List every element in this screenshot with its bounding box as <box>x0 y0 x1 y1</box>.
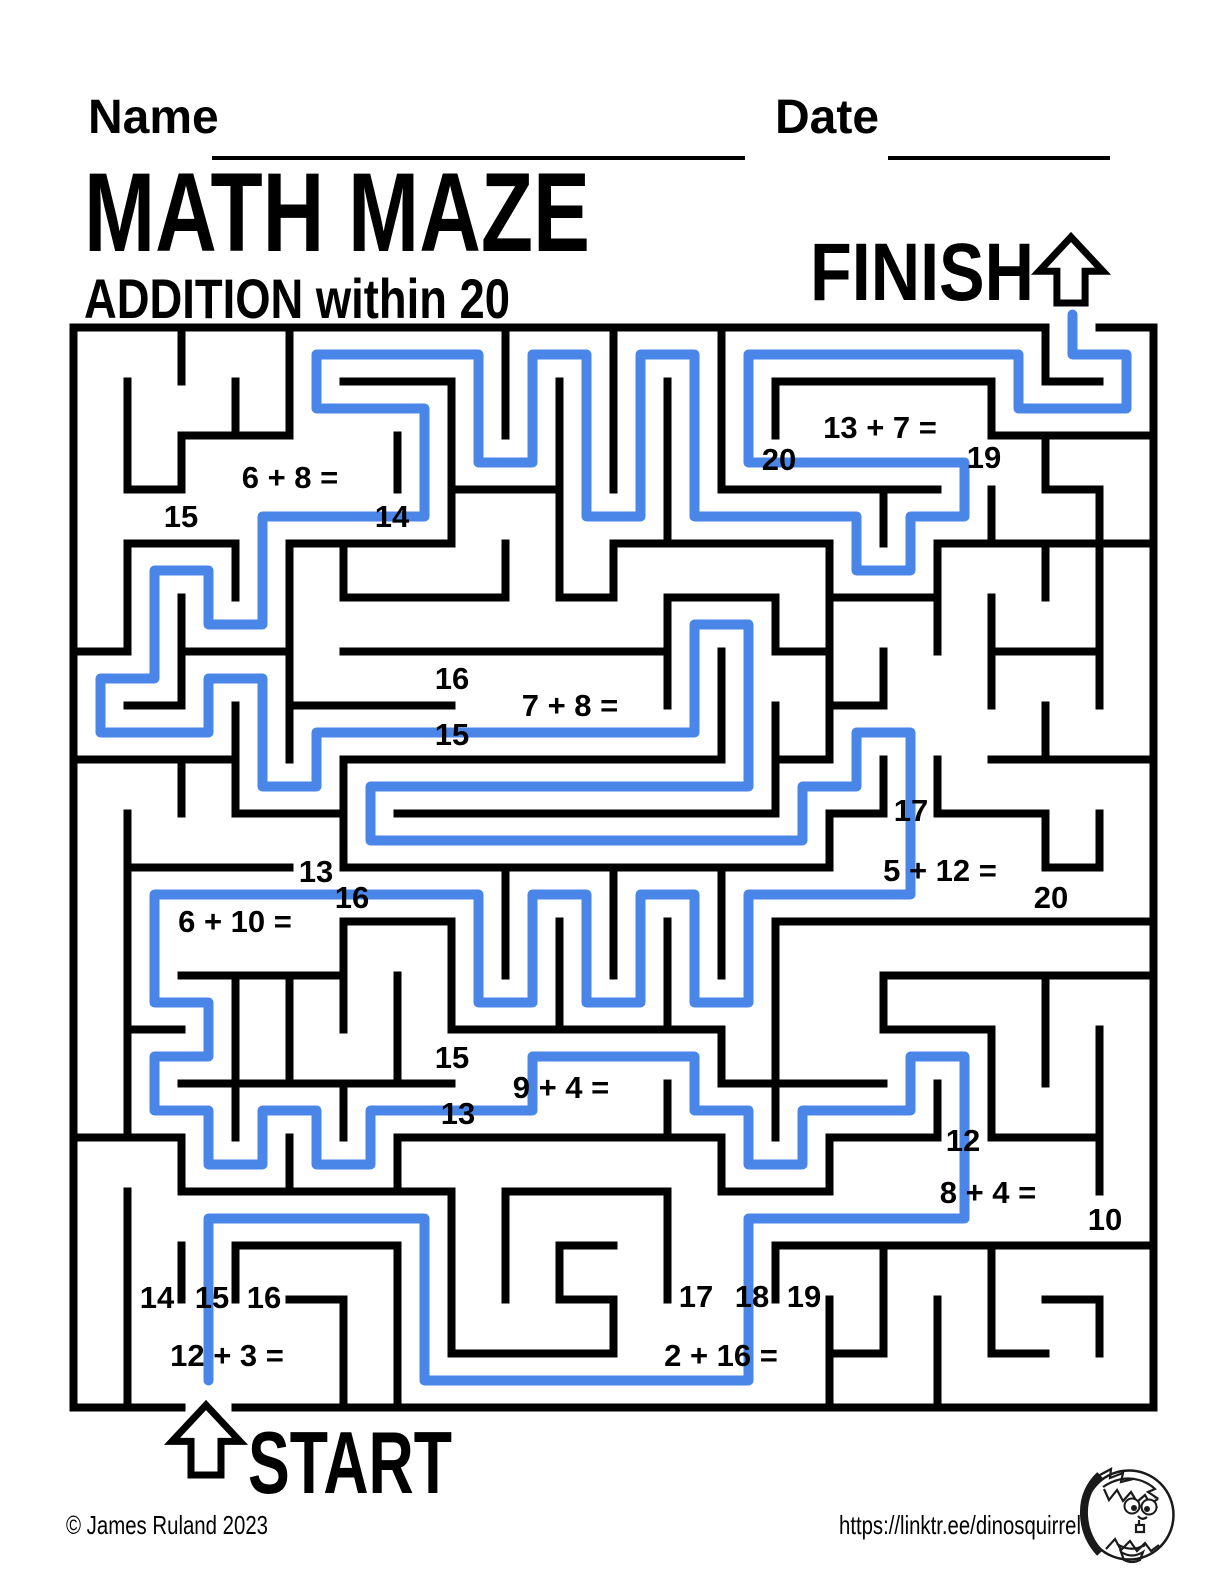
svg-text:Name: Name <box>88 91 219 144</box>
svg-text:START: START <box>248 1413 452 1512</box>
svg-text:7 + 8 =: 7 + 8 = <box>522 688 619 723</box>
svg-text:© James Ruland 2023: © James Ruland 2023 <box>66 1510 268 1540</box>
svg-text:19: 19 <box>967 440 1001 475</box>
svg-text:19: 19 <box>787 1279 821 1314</box>
svg-text:10: 10 <box>1088 1202 1122 1237</box>
svg-text:13: 13 <box>441 1096 475 1131</box>
svg-text:18: 18 <box>735 1279 769 1314</box>
svg-text:17: 17 <box>894 793 928 828</box>
svg-text:9 + 4 =: 9 + 4 = <box>513 1070 610 1105</box>
svg-text:14: 14 <box>375 499 410 534</box>
svg-text:20: 20 <box>762 442 796 477</box>
svg-text:15: 15 <box>195 1280 229 1315</box>
svg-text:16: 16 <box>247 1280 281 1315</box>
svg-text:MATH MAZE: MATH MAZE <box>84 150 590 275</box>
svg-text:16: 16 <box>335 880 369 915</box>
svg-text:12 + 3 =: 12 + 3 = <box>170 1338 284 1373</box>
svg-text:8 + 4 =: 8 + 4 = <box>940 1175 1037 1210</box>
svg-text:Date: Date <box>775 91 879 144</box>
svg-text:15: 15 <box>164 499 198 534</box>
svg-text:13: 13 <box>299 854 333 889</box>
svg-text:20: 20 <box>1034 880 1068 915</box>
svg-text:16: 16 <box>435 661 469 696</box>
svg-text:13 + 7 =: 13 + 7 = <box>823 410 937 445</box>
svg-text:6 + 10 =: 6 + 10 = <box>178 904 292 939</box>
svg-text:15: 15 <box>435 717 469 752</box>
svg-text:14: 14 <box>140 1280 175 1315</box>
svg-text:12: 12 <box>946 1123 980 1158</box>
svg-text:FINISH: FINISH <box>810 227 1034 318</box>
svg-text:6 + 8 =: 6 + 8 = <box>242 460 339 495</box>
svg-text:https://linktr.ee/dinosquirrel: https://linktr.ee/dinosquirrel <box>839 1510 1081 1540</box>
svg-text:15: 15 <box>435 1040 469 1075</box>
svg-text:5 + 12 =: 5 + 12 = <box>883 853 997 888</box>
svg-text:ADDITION within 20: ADDITION within 20 <box>84 267 510 330</box>
svg-text:2 + 16 =: 2 + 16 = <box>664 1338 778 1373</box>
svg-text:17: 17 <box>679 1279 713 1314</box>
